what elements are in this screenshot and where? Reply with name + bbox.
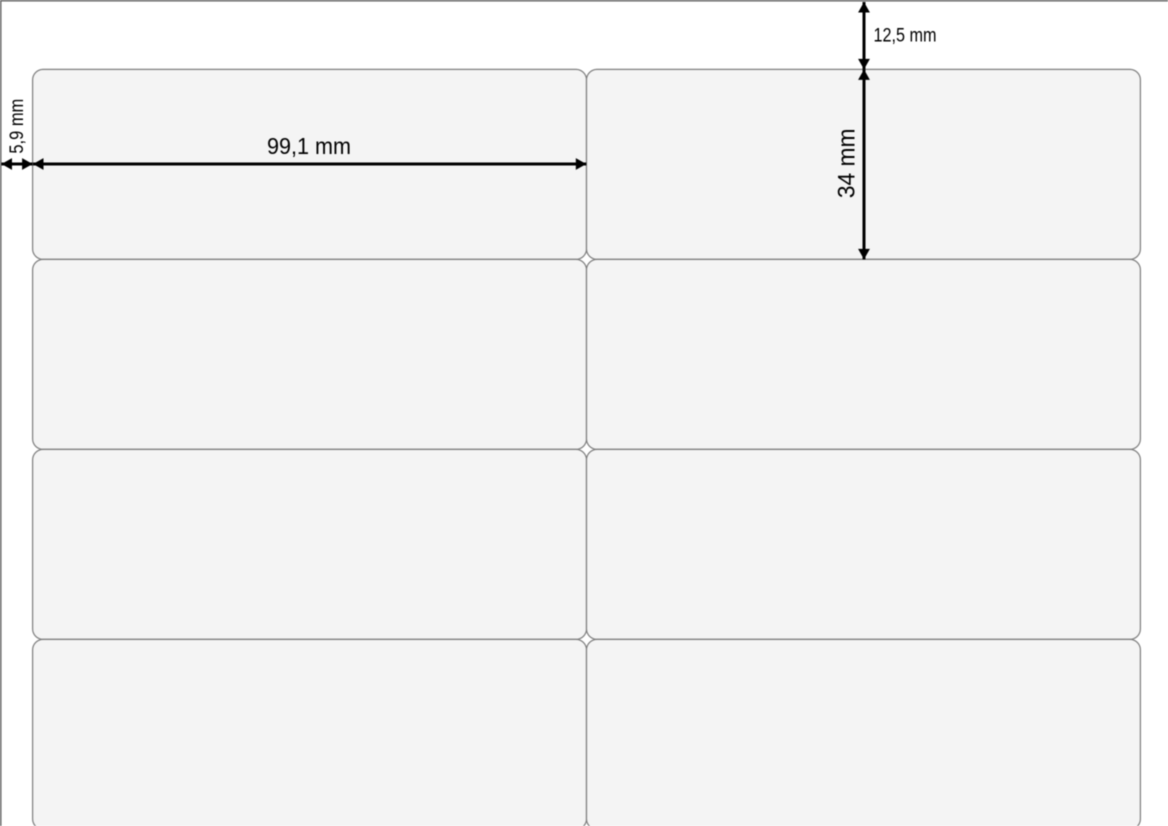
svg-text:5,9 mm: 5,9 mm bbox=[6, 99, 28, 154]
svg-text:12,5 mm: 12,5 mm bbox=[874, 24, 937, 46]
svg-text:99,1 mm: 99,1 mm bbox=[267, 133, 351, 159]
svg-text:34 mm: 34 mm bbox=[833, 128, 860, 198]
